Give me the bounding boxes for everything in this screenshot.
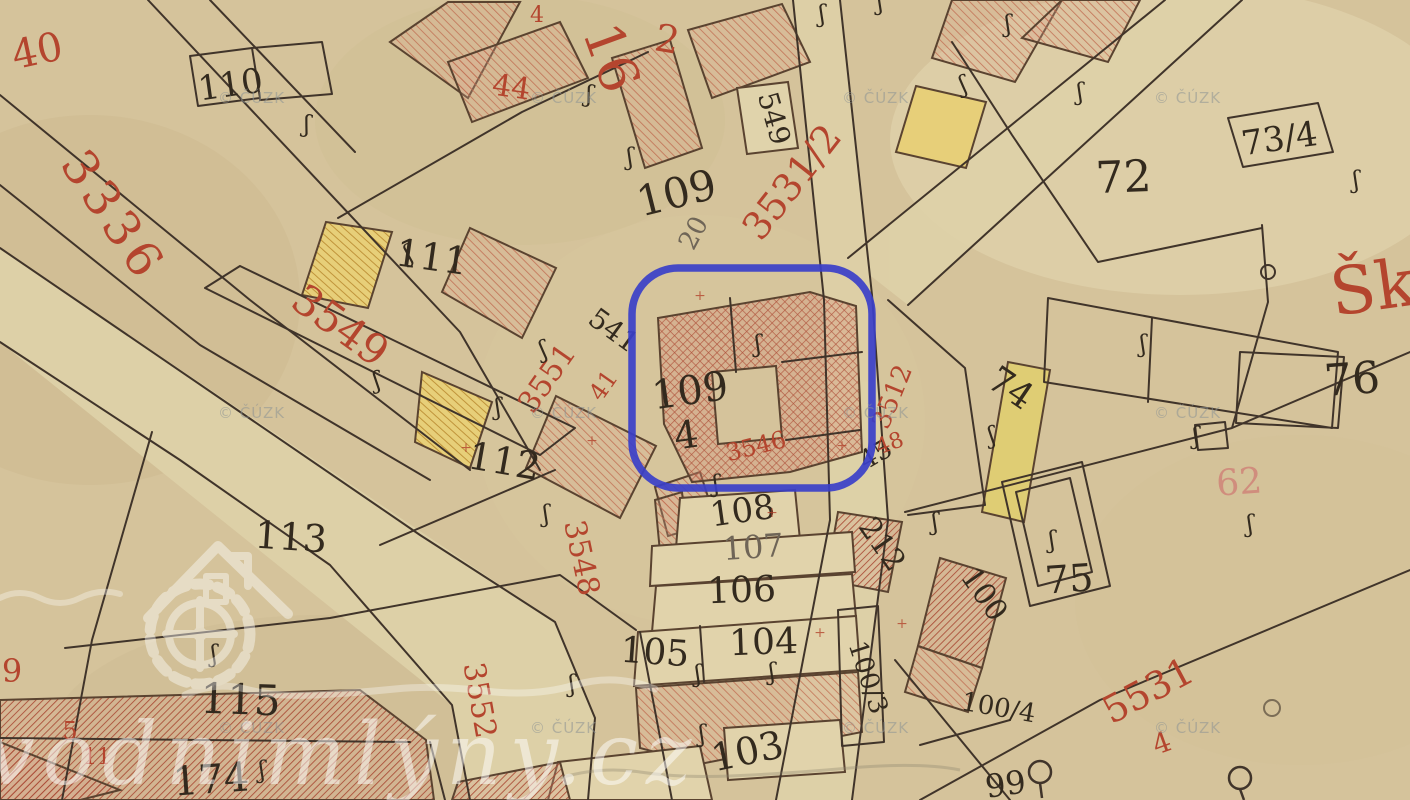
red-tick: + [694, 288, 706, 304]
parcel-75: 75 [1043, 555, 1094, 602]
cuzk-watermark: © ČÚZK [530, 403, 597, 422]
cuzk-watermark: © ČÚZK [1154, 718, 1221, 737]
cuzk-watermark: © ČÚZK [1154, 403, 1221, 422]
red-9: 9 [2, 652, 22, 690]
cuzk-watermark: © ČÚZK [842, 718, 909, 737]
parcel-76: 76 [1322, 352, 1381, 407]
cuzk-watermark: © ČÚZK [218, 88, 285, 107]
cuzk-watermark: © ČÚZK [218, 403, 285, 422]
red-4-top: 4 [530, 3, 544, 28]
red-tick: + [766, 505, 778, 521]
red-tick: + [460, 440, 472, 456]
logo-wheel-hub [193, 627, 207, 641]
cadastral-map-viewport[interactable]: 110109205495411111121131151747273/476747… [0, 0, 1410, 800]
red-tick: + [836, 438, 848, 454]
house-104: 104 [729, 621, 799, 664]
cuzk-watermark: © ČÚZK [530, 88, 597, 107]
cuzk-watermark: © ČÚZK [1154, 88, 1221, 107]
house-105: 105 [619, 630, 690, 676]
label-sk: Šk [1325, 243, 1410, 332]
house-106: 106 [707, 569, 777, 612]
red-tick: + [896, 616, 908, 632]
red-44: 44 [490, 68, 533, 108]
cuzk-watermark: © ČÚZK [842, 403, 909, 422]
red-tick: + [586, 433, 598, 449]
logo-wordmark: vodnimlýny.cz [0, 705, 699, 800]
parcel-62: 62 [1215, 460, 1264, 504]
red-tick: + [814, 625, 826, 641]
cadastral-map-image: 110109205495411111121131151747273/476747… [0, 0, 1410, 800]
parcel-113: 113 [253, 513, 328, 562]
house-107: 107 [721, 526, 785, 568]
parcel-72: 72 [1095, 151, 1153, 204]
cuzk-watermark: © ČÚZK [842, 88, 909, 107]
parcel-99: 99 [983, 762, 1029, 800]
